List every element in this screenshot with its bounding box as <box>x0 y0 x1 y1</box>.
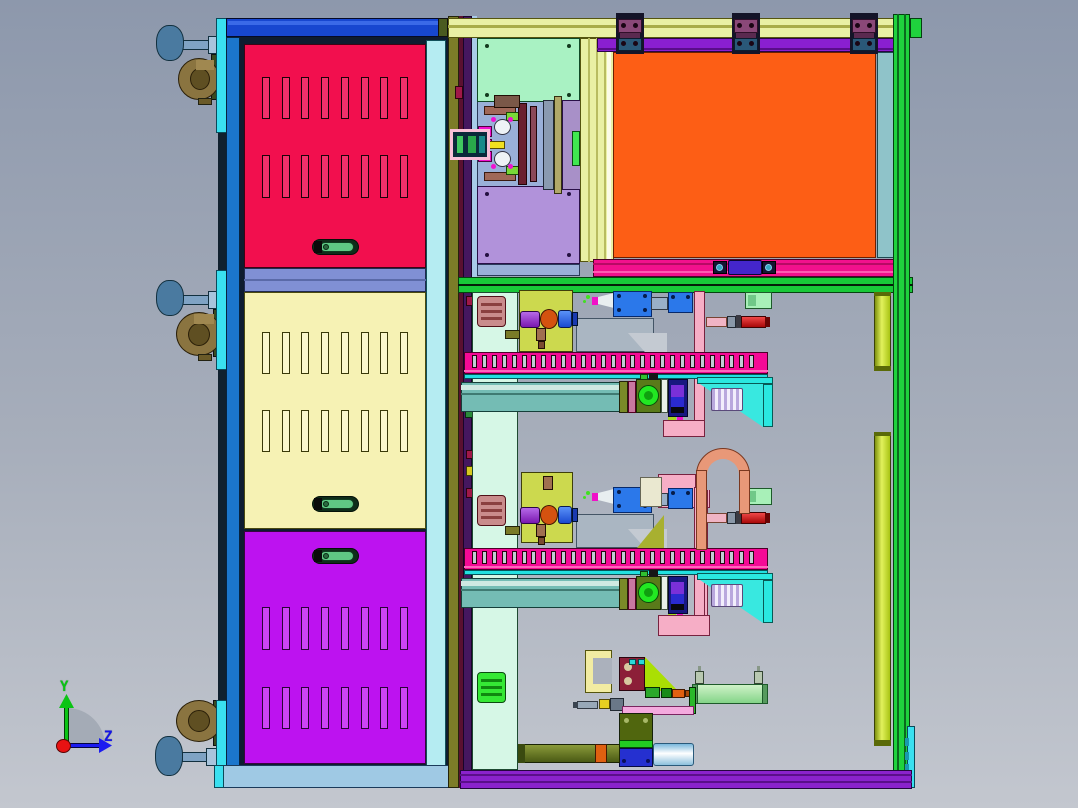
door-band-line <box>244 279 426 281</box>
carrier-upper-slots <box>522 355 527 368</box>
cylinder-cap <box>874 366 891 371</box>
push-rod-pink <box>706 513 727 523</box>
carrier-upper-slots <box>502 355 507 368</box>
door-red <box>244 44 426 268</box>
wedge-top-bar-cyan <box>697 377 773 384</box>
nozzle-tip-magenta <box>592 493 598 501</box>
carrier-lower-slots <box>472 551 477 564</box>
axis-y-arrowhead <box>59 694 74 708</box>
tube-orange-band <box>595 744 607 763</box>
pad-rib-green <box>481 679 502 682</box>
carrier-lower-slots <box>512 551 517 564</box>
carrier-lower-slots <box>690 551 695 564</box>
leveling-foot-cup-top <box>156 25 184 61</box>
frame-end-cap-notch <box>905 738 909 746</box>
carrier-upper-slots <box>581 355 586 368</box>
cylinder-cap-green <box>762 684 768 704</box>
vent-slots-red-row1 <box>301 77 309 119</box>
carrier-lower-slots <box>720 551 725 564</box>
cylinder-red <box>741 316 766 328</box>
door-purple <box>244 531 426 764</box>
block-screw <box>617 308 621 312</box>
beam-lower-line <box>461 589 629 591</box>
wedge-vertical-cyan <box>763 580 773 623</box>
carrier-upper-slots <box>621 355 626 368</box>
valve-knob-brown <box>538 341 545 349</box>
panel-lavender-screw <box>567 253 571 257</box>
carrier-lower-slots <box>601 551 606 564</box>
vent-slots-purple-row1 <box>361 607 369 650</box>
pneumatic-cylinder-purple <box>520 507 540 524</box>
vent-slots-purple-row1 <box>341 607 349 650</box>
vent-slots-yellow-row2 <box>301 410 309 452</box>
mech-khaki-col <box>554 96 562 194</box>
cabinet-bottom-rail <box>214 765 460 788</box>
frame-bar-green-line <box>458 284 913 286</box>
hinge-screw <box>749 41 754 46</box>
valve-knob-brown <box>538 537 545 545</box>
rod-tip-dark <box>573 702 578 708</box>
carrier-upper-slots <box>611 355 616 368</box>
orange-door-right-strip-teal <box>877 52 894 258</box>
block-blue <box>619 748 653 767</box>
valve-ball-orange <box>540 505 558 525</box>
hinge-screw <box>633 41 638 46</box>
frame-post-green-line <box>897 14 899 788</box>
olive-fitting <box>505 330 520 339</box>
carrier-lower-slots <box>541 551 546 564</box>
carrier-upper-slots <box>739 355 744 368</box>
vent-slots-yellow-row2 <box>361 410 369 452</box>
hinge-screw <box>621 41 626 46</box>
carrier-lower-slots <box>522 551 527 564</box>
carrier-upper-slots <box>680 355 685 368</box>
hinge-screw <box>621 23 626 28</box>
carrier-lower-slots <box>551 551 556 564</box>
motor-plate-mauve <box>628 381 636 413</box>
hinge-screw <box>855 23 860 28</box>
hose-u-tube-leg-right <box>739 470 750 514</box>
valve-ball-orange <box>540 309 558 329</box>
fitting-green-2 <box>661 688 672 698</box>
sensor-box-green-bar <box>468 136 476 153</box>
cylinder-red-cap <box>765 513 770 523</box>
motor-top-bit-black <box>649 373 658 380</box>
vent-slots-red-row1 <box>380 77 388 119</box>
nozzle-white <box>597 489 614 504</box>
frame-post-green-ext <box>910 18 922 38</box>
vent-slots-purple-row2 <box>341 687 349 729</box>
vent-slots-yellow-row1 <box>321 332 329 374</box>
orange-door-left-vline <box>604 38 606 262</box>
carrier-upper-slots <box>660 355 665 368</box>
vent-slots-purple-row1 <box>282 607 290 650</box>
vent-slots-red-row2 <box>321 155 329 198</box>
motor-plate-white <box>661 379 668 413</box>
bottom-rail-purple-line <box>460 774 912 776</box>
panel-mint-screw <box>567 44 571 48</box>
mech-brown-box-top <box>494 95 520 108</box>
block-yellow-small <box>599 699 610 709</box>
vent-slots-red-row1 <box>400 77 408 119</box>
vent-slots-red-row2 <box>262 155 270 198</box>
hinge-screw <box>737 41 742 46</box>
vent-slots-purple-row1 <box>301 607 309 650</box>
vent-slots-red-row1 <box>282 77 290 119</box>
nozzle-spark <box>583 300 586 303</box>
door-orange <box>613 52 876 258</box>
cabinet-left-column <box>226 37 240 766</box>
bracket-yellow-c-cut <box>593 658 612 684</box>
handle-lock <box>314 550 322 562</box>
carrier-lower-slots <box>660 551 665 564</box>
pad-rib <box>481 303 502 306</box>
block-screw <box>617 294 621 298</box>
vent-slots-yellow-row2 <box>321 410 329 452</box>
mech-maroon-col-2 <box>530 106 537 182</box>
top-rail-line <box>448 25 913 28</box>
handle-lock <box>314 498 322 510</box>
cylinder-cap <box>874 740 891 746</box>
carrier-upper-slots <box>472 355 477 368</box>
carrier-lower-slots <box>640 551 645 564</box>
leveling-foot-cup-mid <box>156 280 184 316</box>
carrier-upper-slots <box>690 355 695 368</box>
orange-door-fitting-circle <box>765 264 772 271</box>
vent-slots-yellow-row2 <box>400 410 408 452</box>
orange-door-left-vline <box>588 38 590 262</box>
vent-slots-red-row1 <box>341 77 349 119</box>
block-screw <box>671 295 675 299</box>
carrier-upper-slots <box>551 355 556 368</box>
carrier-lower-slots <box>482 551 487 564</box>
panel-mint-screw <box>485 93 489 97</box>
band-green <box>619 740 653 748</box>
orange-door-fitting-circle <box>716 264 723 271</box>
nozzle-spark <box>586 491 590 495</box>
vent-slots-red-row2 <box>301 155 309 198</box>
pneumatic-cylinder-blue <box>558 506 572 524</box>
bolt <box>754 671 763 684</box>
cylinder-yellow-green-upper <box>874 292 891 371</box>
motor-circle-inner <box>644 588 653 597</box>
block-olive-dot <box>643 718 648 723</box>
carrier-lower-slots <box>621 551 626 564</box>
axis-z-label: Z <box>104 729 112 745</box>
vent-slots-red-row1 <box>321 77 329 119</box>
divider-tab-maroon-1 <box>455 86 463 99</box>
carrier-lower-slots <box>670 551 675 564</box>
carrier-lower-slots <box>611 551 616 564</box>
pad-rib <box>481 509 502 512</box>
valve-stem-brown <box>536 524 546 537</box>
carrier-upper-slots <box>531 355 536 368</box>
bottom-rail-purple-line <box>460 781 912 783</box>
caster-hub-bottom <box>188 710 210 732</box>
vent-slots-yellow-row2 <box>262 410 270 452</box>
pink-frame-bottom <box>658 615 710 636</box>
carrier-lower-slots <box>650 551 655 564</box>
carrier-lower-slots <box>591 551 596 564</box>
top-corner-block <box>438 18 448 37</box>
pad-rib <box>481 516 502 519</box>
cylinder-light-green <box>692 684 768 704</box>
carrier-lower-slots <box>561 551 566 564</box>
carrier-lower-slots <box>700 551 705 564</box>
block-hole <box>624 677 632 685</box>
mech-magenta-dot <box>508 117 513 122</box>
rod-collar <box>727 512 736 524</box>
panel-lavender-screw <box>485 192 489 196</box>
hose-u-tube-hole <box>707 459 739 490</box>
carrier-upper-slots <box>670 355 675 368</box>
nozzle-spark <box>586 295 590 299</box>
pad-rib <box>481 317 502 320</box>
drive-unit-band <box>671 604 684 610</box>
nozzle-spark <box>583 496 586 499</box>
motor-top-bit-green <box>640 374 648 380</box>
sensor-box-teal-bar <box>479 136 485 153</box>
vent-slots-red-row2 <box>361 155 369 198</box>
mech-magenta-dot <box>491 164 496 169</box>
vent-slots-red-row2 <box>341 155 349 198</box>
vent-slots-yellow-row2 <box>380 410 388 452</box>
panel-mint <box>477 38 580 102</box>
caster-hub-mid <box>188 323 210 346</box>
vent-slots-yellow-row1 <box>262 332 270 374</box>
block-screw <box>671 491 675 495</box>
motor-plate-olive <box>619 381 628 413</box>
frame-post-green <box>893 14 910 788</box>
carrier-upper-slots <box>720 355 725 368</box>
mech-green-strip <box>572 131 580 166</box>
carrier-upper-slots <box>571 355 576 368</box>
block-screw <box>617 490 621 494</box>
hinge-screw <box>867 41 872 46</box>
carrier-upper-slots <box>710 355 715 368</box>
carrier-lower-slots <box>729 551 734 564</box>
block-screw <box>643 308 647 312</box>
hinge-screw <box>867 23 872 28</box>
sensor-box-green-bar <box>457 136 463 153</box>
vent-slots-purple-row1 <box>321 607 329 650</box>
drive-unit-band <box>671 407 684 413</box>
drive-unit-blue <box>671 594 684 604</box>
carrier-upper-slots <box>541 355 546 368</box>
pneumatic-cylinder-purple <box>520 311 540 328</box>
carrier-upper-slots <box>601 355 606 368</box>
carrier-upper-slots <box>630 355 635 368</box>
vent-slots-yellow-row1 <box>341 332 349 374</box>
vent-slots-red-row1 <box>262 77 270 119</box>
carrier-lower-slots <box>502 551 507 564</box>
vent-slots-purple-row2 <box>361 687 369 729</box>
vent-slots-purple-row1 <box>400 607 408 650</box>
cylinder-tip-blue <box>572 312 578 326</box>
wedge-top-bar-cyan <box>697 573 773 580</box>
carrier-lower-slots <box>680 551 685 564</box>
carrier-lower-slots <box>710 551 715 564</box>
block-cyan-bit <box>629 659 636 665</box>
hinge-screw <box>749 23 754 28</box>
panel-lavender-screw <box>567 192 571 196</box>
pad-rib <box>481 502 502 505</box>
caster-fork-top <box>196 60 214 70</box>
carrier-lower-line <box>464 566 768 568</box>
rod-collar <box>727 316 736 328</box>
vent-slots-purple-row2 <box>380 687 388 729</box>
cabinet-bottom-rail-cap <box>214 765 224 788</box>
frame-end-cap-notch <box>905 752 909 760</box>
vent-slots-yellow-row1 <box>400 332 408 374</box>
motor-plate-white <box>661 576 668 610</box>
beam-upper-strip <box>461 385 629 390</box>
hose-u-tube-leg-left <box>696 470 707 550</box>
vent-slots-purple-row2 <box>262 687 270 729</box>
pad-rib-green <box>481 693 502 696</box>
tube-olive-cap <box>518 744 525 763</box>
block-blue-dot <box>622 759 626 763</box>
nozzle-tip-magenta <box>592 297 598 305</box>
carrier-lower-slots <box>531 551 536 564</box>
vent-slots-red-row1 <box>361 77 369 119</box>
mech-magenta-dot <box>508 164 513 169</box>
vent-slots-yellow-row2 <box>341 410 349 452</box>
vent-slots-yellow-row1 <box>380 332 388 374</box>
vent-slots-red-row2 <box>282 155 290 198</box>
block-connector <box>651 297 668 310</box>
pad-rib-green <box>481 686 502 689</box>
motor-plate-olive <box>619 578 628 610</box>
carrier-upper-slots <box>650 355 655 368</box>
motor-plate-mauve <box>628 578 636 610</box>
block-olive <box>619 713 653 741</box>
carrier-upper-slots <box>700 355 705 368</box>
cylinder-cap <box>874 432 891 436</box>
vent-slots-purple-row1 <box>380 607 388 650</box>
carrier-upper-line <box>464 370 768 372</box>
vent-slots-red-row2 <box>400 155 408 198</box>
pink-foot-upper <box>663 420 705 437</box>
carrier-upper-slots <box>512 355 517 368</box>
mech-steel-strip <box>477 264 580 276</box>
carrier-upper-slots <box>749 355 754 368</box>
panel-lavender <box>477 186 580 264</box>
motor-top-bit-black <box>649 570 658 577</box>
fitting-orange <box>672 689 685 698</box>
chuck-striped-cylinder <box>711 584 743 607</box>
vent-slots-yellow-row1 <box>282 332 290 374</box>
top-rail <box>448 18 913 38</box>
block-screw <box>643 294 647 298</box>
fixture-box-stub <box>543 476 553 490</box>
axis-z-line <box>67 743 101 748</box>
frame-post-green-line <box>904 14 906 788</box>
olive-fitting <box>505 526 520 535</box>
vent-slots-purple-row2 <box>282 687 290 729</box>
leveling-foot-stem-mid <box>180 295 210 305</box>
nozzle-white <box>597 293 614 308</box>
triangle-lime <box>645 657 678 691</box>
push-rod-pink <box>706 317 727 327</box>
caster-hub-top <box>190 68 210 90</box>
beam-upper-line <box>461 393 629 395</box>
drive-unit-blue <box>671 397 684 407</box>
caster-tab-mid <box>198 354 212 361</box>
orange-door-handle <box>728 260 762 275</box>
vent-slots-yellow-row1 <box>301 332 309 374</box>
pneumatic-cylinder-blue <box>558 310 572 328</box>
cylinder-yellow-green-lower <box>874 432 891 746</box>
orange-door-left-vline <box>596 38 598 262</box>
carrier-upper-slots <box>591 355 596 368</box>
fitting-green-1 <box>645 687 660 698</box>
mech-maroon-col-1 <box>518 103 527 185</box>
block-cyan-bit <box>638 659 645 665</box>
carrier-lower-slots <box>739 551 744 564</box>
hinge-screw <box>855 41 860 46</box>
cream-plate <box>640 477 662 507</box>
pad-rib <box>481 310 502 313</box>
handle-lock-dot <box>323 501 329 507</box>
caster-fork-mid <box>194 314 214 324</box>
caster-tab-top <box>198 98 212 105</box>
leveling-foot-cup-bottom <box>155 736 183 776</box>
mint-box-inner <box>748 295 756 306</box>
door-yellow <box>244 292 426 529</box>
block-olive-dot <box>624 718 629 723</box>
vent-slots-yellow-row2 <box>282 410 290 452</box>
mech-steel-col <box>543 100 554 190</box>
vent-slots-purple-row1 <box>262 607 270 650</box>
block-screw <box>686 491 690 495</box>
carrier-upper-slots <box>561 355 566 368</box>
bottom-rail-purple <box>460 770 912 789</box>
leveling-foot-stem-top <box>180 40 210 50</box>
cabinet-right-strip <box>426 40 446 766</box>
beam-lower-strip <box>461 581 629 586</box>
carrier-upper-slots <box>482 355 487 368</box>
axis-origin-dot <box>56 739 71 753</box>
axis-y-label: Y <box>60 679 68 695</box>
carrier-lower-slots <box>492 551 497 564</box>
motor-circle-inner <box>644 391 653 400</box>
wedge-vertical-cyan <box>763 384 773 427</box>
machine-assembly-view <box>0 0 1078 808</box>
cylinder-tip-blue <box>572 508 578 522</box>
cad-viewport: Y Z <box>0 0 1078 808</box>
vent-slots-red-row2 <box>380 155 388 198</box>
vent-slots-purple-row2 <box>301 687 309 729</box>
hinge-screw <box>633 23 638 28</box>
carrier-lower-slots <box>630 551 635 564</box>
carrier-lower-slots <box>581 551 586 564</box>
panel-mint-screw <box>485 44 489 48</box>
mech-magenta-dot <box>491 117 496 122</box>
carrier-lower-slots <box>749 551 754 564</box>
chuck-striped-cylinder <box>711 388 743 411</box>
cabinet-side-dark-strip <box>218 18 226 788</box>
hinge-screw <box>737 23 742 28</box>
block-screw <box>617 504 621 508</box>
panel-mint-screw <box>567 93 571 97</box>
orange-door-white-strip <box>607 44 611 260</box>
vent-slots-purple-row2 <box>400 687 408 729</box>
carrier-upper-slots <box>640 355 645 368</box>
valve-stem-brown <box>536 328 546 341</box>
cylinder-red-cap <box>765 317 770 327</box>
handle-lock <box>314 241 322 253</box>
